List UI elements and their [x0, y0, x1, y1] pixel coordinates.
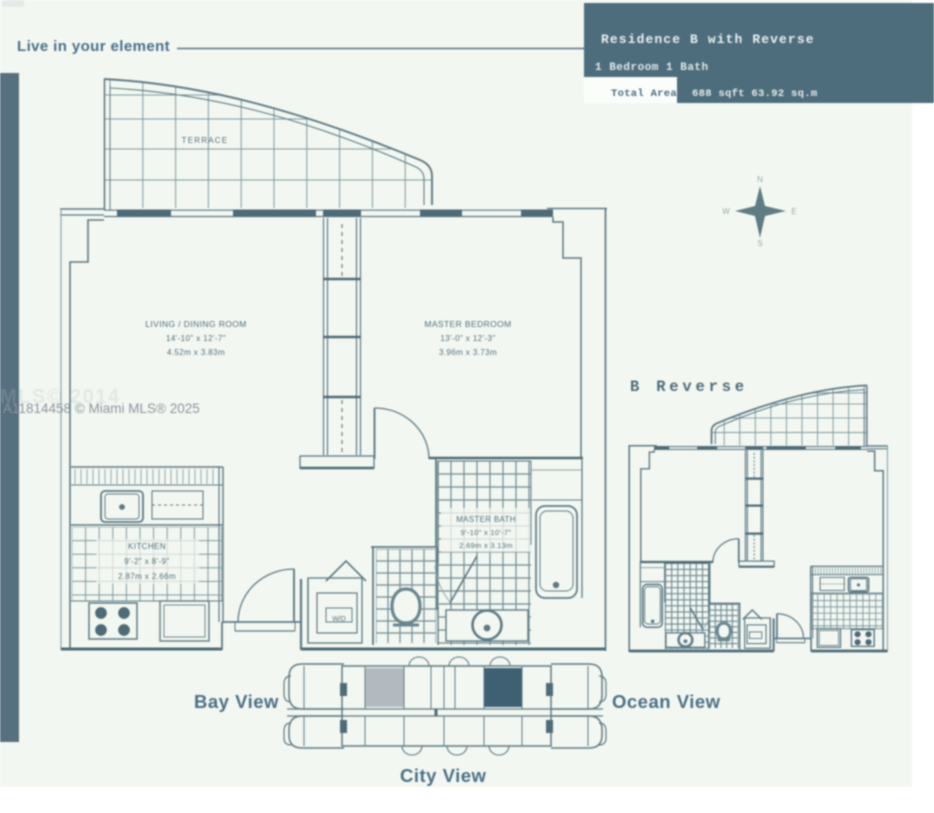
svg-text:688 sqft 63.92 sq.m: 688 sqft 63.92 sq.m	[692, 88, 817, 100]
svg-text:4.52m x 3.83m: 4.52m x 3.83m	[167, 348, 225, 357]
svg-text:Ocean View: Ocean View	[612, 691, 721, 712]
svg-text:14'-10" x 12'-7": 14'-10" x 12'-7"	[166, 334, 226, 343]
svg-text:N: N	[757, 175, 763, 184]
svg-text:2.69m x 3.13m: 2.69m x 3.13m	[459, 541, 513, 550]
svg-text:1 Bedroom 1 Bath: 1 Bedroom 1 Bath	[595, 62, 709, 74]
svg-text:A11814458 © Miami MLS® 2025: A11814458 © Miami MLS® 2025	[3, 401, 200, 416]
svg-text:2.87m x 2.66m: 2.87m x 2.66m	[118, 572, 176, 581]
svg-text:W/D: W/D	[332, 616, 346, 623]
svg-text:W: W	[722, 207, 730, 216]
svg-text:Live in your element: Live in your element	[17, 38, 170, 55]
svg-text:KITCHEN: KITCHEN	[128, 542, 166, 551]
svg-text:9'-2" x 8'-9": 9'-2" x 8'-9"	[124, 557, 170, 566]
svg-text:MASTER BATH: MASTER BATH	[456, 515, 516, 524]
svg-text:Residence B with Reverse: Residence B with Reverse	[601, 32, 815, 47]
svg-text:LIVING / DINING ROOM: LIVING / DINING ROOM	[145, 319, 247, 329]
svg-text:Bay View: Bay View	[194, 691, 279, 712]
svg-text:Total Area: Total Area	[611, 88, 677, 100]
svg-text:9'-10" x 10'-7": 9'-10" x 10'-7"	[461, 528, 512, 537]
svg-text:13'-0" x 12'-3": 13'-0" x 12'-3"	[440, 334, 495, 343]
svg-text:TERRACE: TERRACE	[182, 136, 229, 145]
svg-text:City View: City View	[400, 765, 487, 786]
svg-text:MASTER BEDROOM: MASTER BEDROOM	[424, 319, 511, 329]
svg-text:3.96m x 3.73m: 3.96m x 3.73m	[439, 348, 497, 357]
svg-text:S: S	[757, 239, 762, 248]
svg-text:B Reverse: B Reverse	[630, 378, 748, 396]
svg-text:E: E	[791, 207, 796, 216]
